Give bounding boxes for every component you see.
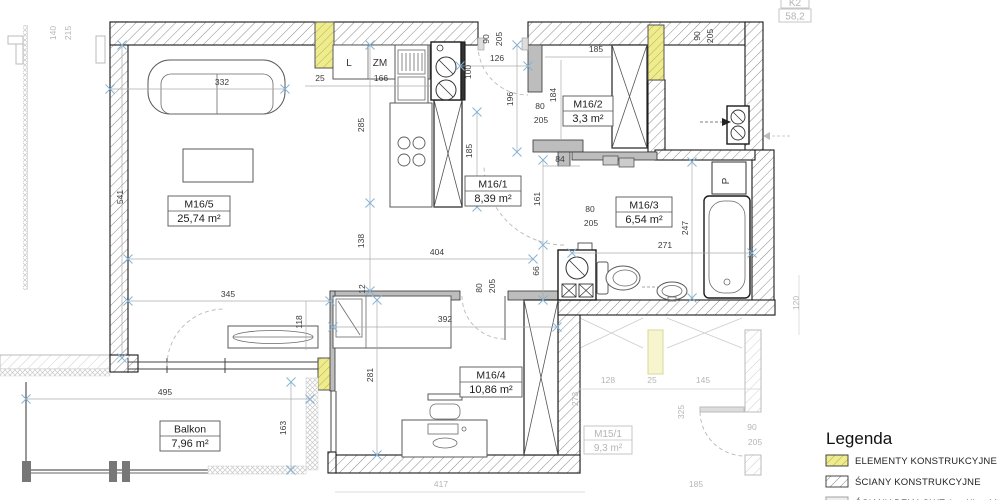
dim-185-grey: 185 [689, 479, 703, 489]
door-jamb [522, 38, 528, 50]
structural-element [315, 22, 334, 68]
room-area: 25,74 m² [177, 213, 221, 225]
dim-128: 128 [601, 375, 615, 385]
table [183, 149, 253, 182]
dim-417: 417 [434, 479, 448, 489]
dim-247: 247 [680, 221, 690, 235]
dim-80-wardrobe: 80 [535, 101, 545, 111]
dim-25-grey: 25 [647, 375, 657, 385]
bath-sink [657, 282, 687, 301]
partition-bedroom-top-right [508, 291, 558, 300]
washing-machine [558, 243, 596, 300]
shaft-kitchen [434, 100, 462, 207]
legend-title: Legenda [826, 429, 893, 448]
dim-84: 84 [555, 154, 565, 164]
dim-392: 392 [438, 314, 452, 324]
desk [402, 420, 487, 457]
legend-item-label: ŚCIANY KONSTRUKCYJNE [855, 476, 981, 488]
sink-unit [431, 42, 461, 100]
sofa [148, 60, 285, 114]
window-frame-icon [16, 44, 23, 64]
railing-post [22, 461, 31, 482]
legend-item-label: ELEMENTY KONSTRUKCYJNE [855, 456, 997, 467]
radiator-icon [603, 156, 618, 165]
dim-273: 273 [570, 392, 580, 406]
dim-205-wardrobe: 205 [534, 115, 548, 125]
dim-495: 495 [158, 387, 172, 397]
dim-90-topright: 90 [692, 31, 702, 41]
dim-145: 145 [696, 375, 710, 385]
dim-325: 325 [676, 405, 686, 419]
wall-bath-right [752, 150, 774, 315]
dim-25: 25 [315, 73, 325, 83]
wall-wardrobe-right [648, 80, 665, 152]
dim-184: 184 [548, 88, 558, 102]
wall-bath-bottom [558, 300, 775, 315]
dim-185-wardrobe: 185 [589, 44, 603, 54]
window-frame-icon [8, 36, 23, 44]
dim-118: 118 [294, 315, 304, 329]
dim-185-kitchen: 185 [464, 144, 474, 158]
dim-196: 196 [505, 92, 515, 106]
toilet [597, 262, 658, 294]
dim-120: 120 [791, 296, 801, 310]
shaft-wardrobe [612, 45, 647, 148]
windows [128, 358, 336, 452]
dim-205-topright: 205 [705, 29, 715, 43]
room-label-bath: M16/3 6,54 m² [616, 197, 672, 227]
balcony-divider [306, 378, 318, 470]
fridge-label: L [346, 58, 352, 69]
room-name: M15/1 [594, 429, 622, 440]
neighbor-door-leaf [700, 407, 744, 412]
dim-285: 285 [356, 118, 366, 132]
room-area: 9,3 m² [594, 443, 623, 454]
bathtub [704, 196, 750, 298]
neighbor-wall [0, 355, 110, 369]
room-label-balcony: Balkon 7,96 m² [160, 421, 220, 451]
room-area: 3,3 m² [572, 113, 604, 125]
room-area: 6,54 m² [625, 214, 663, 226]
wall-bedroom-bottom [335, 455, 580, 473]
railing-post [109, 461, 117, 482]
wall-bath-top-right [655, 150, 755, 160]
dim-161: 161 [532, 192, 542, 206]
room-label-hall: M16/1 8,39 m² [465, 176, 521, 206]
room-area: 10,86 m² [469, 384, 513, 396]
room-name: M16/4 [476, 370, 505, 382]
bed [333, 296, 451, 348]
dim-80-bath: 80 [585, 204, 595, 214]
room-area: 7,96 m² [171, 438, 209, 450]
dim-205-grey: 205 [748, 437, 762, 447]
dim-80-bedroom: 80 [474, 283, 484, 293]
partition-wardrobe-bottom [533, 140, 583, 152]
room-name: Balkon [174, 424, 206, 436]
washer-column-label: P [721, 177, 732, 184]
dim-541: 541 [115, 190, 125, 204]
room-name: M16/5 [184, 199, 213, 211]
radiator-icon [619, 158, 634, 167]
room-label-wardrobe: M16/2 3,3 m² [563, 96, 613, 126]
dim-215: 215 [63, 26, 73, 40]
room-area: 8,39 m² [474, 193, 512, 205]
chair [430, 404, 460, 419]
railing-post [122, 461, 130, 482]
dishwasher-label: ZM [373, 58, 387, 69]
legend-swatch-structural-wall [826, 476, 848, 487]
window-frame-icon [96, 36, 105, 63]
dim-332: 332 [215, 77, 229, 87]
top-right-appliance [727, 106, 749, 144]
room-name: M16/1 [478, 179, 507, 191]
neighbor-wall [745, 455, 761, 475]
dim-166: 166 [374, 73, 388, 83]
legend-swatch-structural-element [826, 455, 848, 466]
adjacent-unit-label: K2 [789, 0, 802, 9]
wall-corner-stub [328, 452, 336, 473]
room-label-bedroom: M16/4 10,86 m² [460, 367, 522, 397]
dim-138: 138 [356, 234, 366, 248]
neighbor-door-arc [700, 412, 744, 456]
adjacent-balcony-sill [23, 25, 27, 290]
structural-element [648, 25, 664, 80]
wall-top-left [110, 22, 478, 45]
dim-126: 126 [490, 53, 504, 63]
dim-205-bedroom: 205 [487, 279, 497, 293]
neighbor-sill [0, 369, 110, 376]
dim-404: 404 [430, 247, 444, 257]
dim-345: 345 [221, 289, 235, 299]
room-label-neighbor: M15/1 9,3 m² [584, 426, 632, 454]
neighbor-wall [745, 330, 761, 412]
dim-281: 281 [365, 368, 375, 382]
monitor-icon [428, 394, 462, 400]
dim-163: 163 [278, 421, 288, 435]
room-name: M16/2 [573, 99, 602, 111]
dim-271: 271 [658, 240, 672, 250]
room-name: M16/3 [629, 200, 658, 212]
dim-205-bath: 205 [584, 218, 598, 228]
dim-140: 140 [48, 26, 58, 40]
dim-100: 100 [463, 65, 473, 79]
adjacent-area-label: 58,2 [785, 12, 805, 23]
kitchen-counter [390, 103, 432, 207]
room-label-living: M16/5 25,74 m² [168, 196, 230, 226]
balcony-door-arc [167, 309, 224, 366]
dim-205-entry: 205 [494, 32, 504, 46]
legend: Legenda ELEMENTY KONSTRUKCYJNE ŚCIANY KO… [826, 429, 997, 500]
bedroom-door-arc [462, 296, 505, 339]
dim-66: 66 [531, 266, 541, 276]
floor-plan-page: K2 58,2 [0, 0, 1000, 500]
dim-90-grey: 90 [747, 422, 757, 432]
arrow-icon [763, 132, 770, 140]
floor-plan-svg: K2 58,2 [0, 0, 1000, 500]
neighbor-structural-element [648, 330, 663, 374]
dim-12: 12 [357, 284, 367, 294]
dim-90-entry: 90 [481, 34, 491, 44]
